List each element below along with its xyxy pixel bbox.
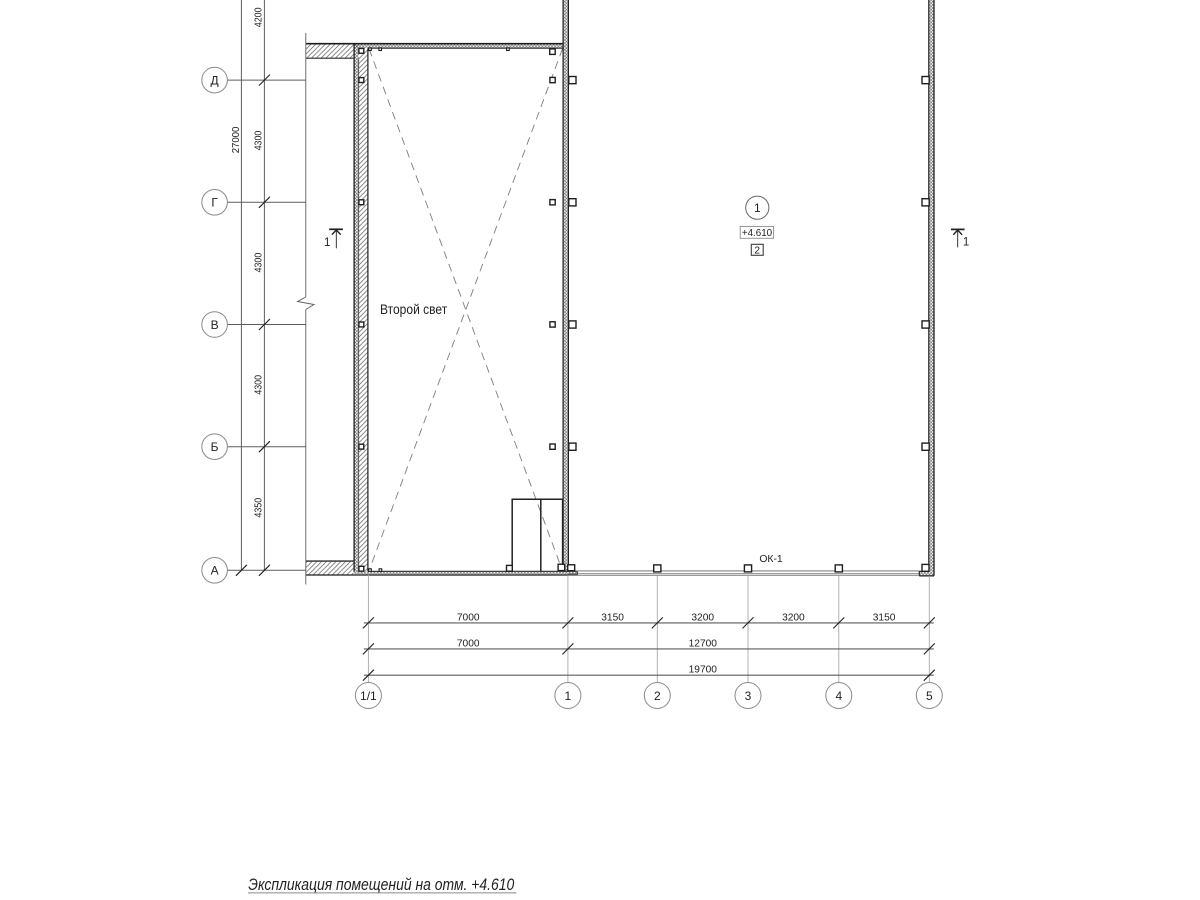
svg-text:1: 1 <box>963 237 969 249</box>
svg-text:Второй свет: Второй свет <box>380 302 448 317</box>
svg-text:3150: 3150 <box>601 613 624 624</box>
svg-text:19700: 19700 <box>689 664 718 675</box>
svg-text:4: 4 <box>835 689 842 703</box>
svg-text:1/1: 1/1 <box>360 689 377 703</box>
svg-text:Г: Г <box>211 196 218 210</box>
svg-text:+4.610: +4.610 <box>742 228 773 239</box>
svg-text:3200: 3200 <box>691 613 714 624</box>
svg-text:4300: 4300 <box>254 252 265 272</box>
svg-text:4300: 4300 <box>254 374 265 394</box>
svg-text:3: 3 <box>745 689 752 703</box>
svg-text:1: 1 <box>565 689 572 703</box>
svg-text:2: 2 <box>754 246 760 257</box>
svg-text:А: А <box>211 564 219 578</box>
svg-text:ОК-1: ОК-1 <box>759 554 783 565</box>
svg-text:Д: Д <box>211 73 219 87</box>
svg-text:5: 5 <box>926 689 933 703</box>
svg-text:В: В <box>211 318 219 332</box>
svg-text:Экспликация помещений на отм.: Экспликация помещений на отм. +4.610 <box>248 875 514 894</box>
svg-text:4300: 4300 <box>254 130 265 150</box>
svg-text:Б: Б <box>211 440 219 454</box>
svg-text:7000: 7000 <box>457 639 480 650</box>
svg-text:4350: 4350 <box>254 497 265 517</box>
svg-text:27000: 27000 <box>231 126 242 153</box>
svg-text:1: 1 <box>754 201 761 215</box>
svg-text:1: 1 <box>324 237 330 249</box>
svg-text:12700: 12700 <box>689 639 718 650</box>
svg-text:7000: 7000 <box>457 613 480 624</box>
svg-text:3200: 3200 <box>782 613 805 624</box>
svg-text:4200: 4200 <box>254 7 265 27</box>
svg-text:3150: 3150 <box>873 613 896 624</box>
svg-text:2: 2 <box>654 689 661 703</box>
